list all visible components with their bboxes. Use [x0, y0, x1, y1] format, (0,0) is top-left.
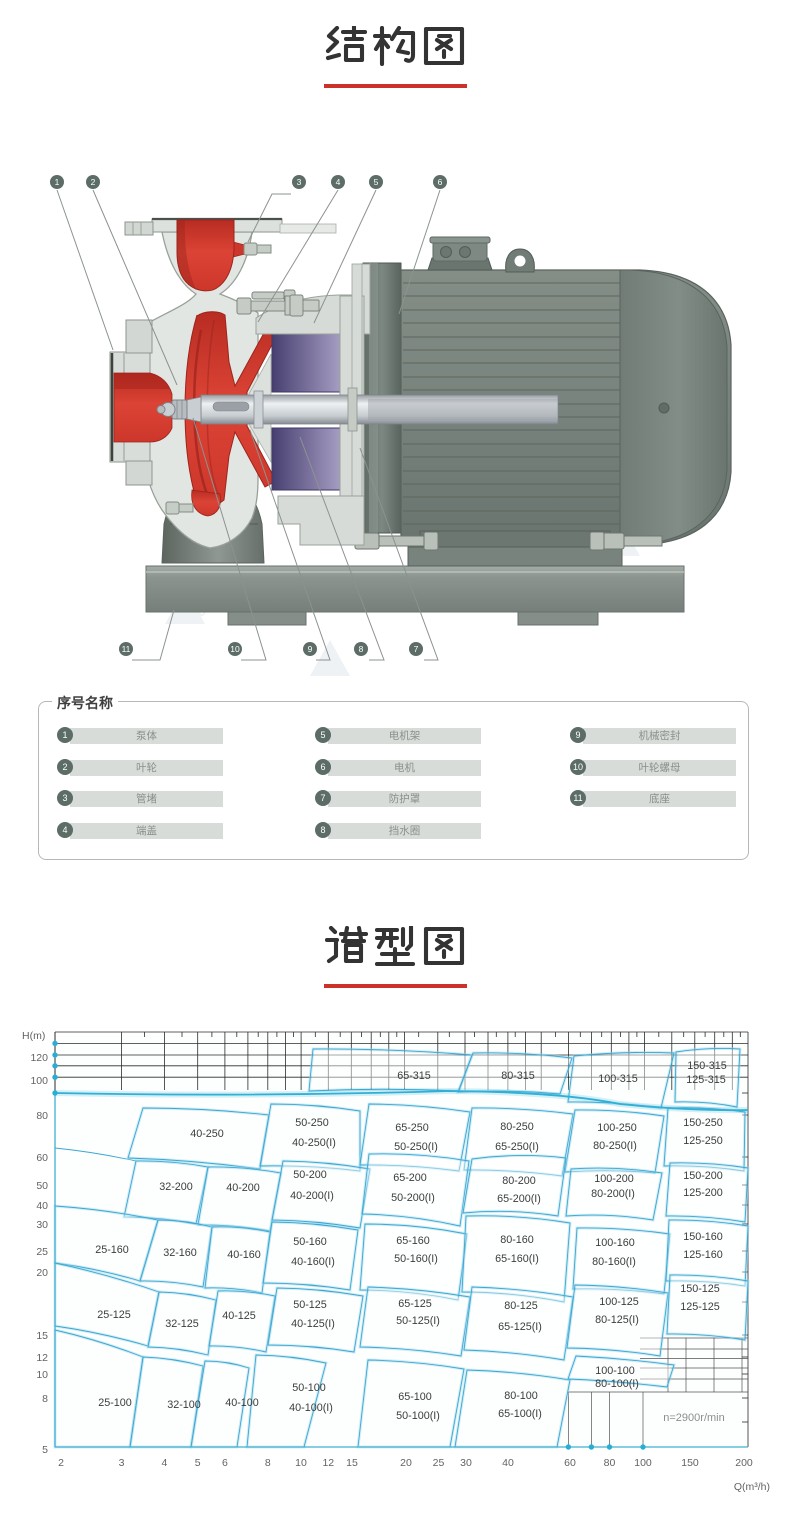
- svg-text:8: 8: [359, 644, 364, 654]
- svg-text:40: 40: [502, 1457, 514, 1469]
- svg-text:5: 5: [195, 1457, 201, 1469]
- svg-text:125-250: 125-250: [683, 1135, 723, 1147]
- svg-text:80-315: 80-315: [501, 1070, 535, 1082]
- svg-text:40-160(I): 40-160(I): [291, 1256, 335, 1268]
- svg-text:100-200: 100-200: [594, 1173, 634, 1185]
- svg-text:150-125: 150-125: [680, 1283, 720, 1295]
- svg-text:50-125(I): 50-125(I): [396, 1315, 440, 1327]
- svg-text:40-100(I): 40-100(I): [289, 1402, 333, 1414]
- svg-text:50-250(I): 50-250(I): [394, 1141, 438, 1153]
- svg-text:80-250: 80-250: [500, 1121, 534, 1133]
- svg-text:5: 5: [42, 1444, 48, 1456]
- svg-text:50-100: 50-100: [292, 1382, 326, 1394]
- svg-text:4: 4: [336, 177, 341, 187]
- svg-text:2: 2: [58, 1457, 64, 1469]
- svg-text:80-125: 80-125: [504, 1300, 538, 1312]
- svg-text:65-125(I): 65-125(I): [498, 1321, 542, 1333]
- svg-text:50-250: 50-250: [295, 1117, 329, 1129]
- svg-text:50-100(I): 50-100(I): [396, 1410, 440, 1422]
- svg-text:10: 10: [230, 644, 240, 654]
- svg-text:65-100: 65-100: [398, 1391, 432, 1403]
- svg-text:125-315: 125-315: [686, 1074, 726, 1086]
- svg-text:1: 1: [55, 177, 60, 187]
- svg-text:100-250: 100-250: [597, 1122, 637, 1134]
- svg-text:40-125(I): 40-125(I): [291, 1318, 335, 1330]
- svg-text:100: 100: [30, 1075, 48, 1087]
- svg-text:65-160: 65-160: [396, 1235, 430, 1247]
- svg-text:125-200: 125-200: [683, 1187, 723, 1199]
- svg-text:3: 3: [119, 1457, 125, 1469]
- svg-text:80-160(I): 80-160(I): [592, 1256, 636, 1268]
- svg-text:25-125: 25-125: [97, 1309, 131, 1321]
- svg-text:100-125: 100-125: [599, 1296, 639, 1308]
- svg-text:8: 8: [265, 1457, 271, 1469]
- svg-text:65-250(I): 65-250(I): [495, 1141, 539, 1153]
- svg-text:3: 3: [297, 177, 302, 187]
- svg-text:12: 12: [322, 1457, 334, 1469]
- svg-text:40-250(I): 40-250(I): [292, 1137, 336, 1149]
- svg-text:9: 9: [308, 644, 313, 654]
- svg-text:30: 30: [460, 1457, 472, 1469]
- svg-text:60: 60: [564, 1457, 576, 1469]
- svg-text:25-100: 25-100: [98, 1397, 132, 1409]
- svg-text:80-200: 80-200: [502, 1175, 536, 1187]
- svg-text:150-200: 150-200: [683, 1170, 723, 1182]
- svg-text:11: 11: [122, 644, 131, 654]
- svg-text:80-100: 80-100: [504, 1390, 538, 1402]
- svg-text:80-160: 80-160: [500, 1234, 534, 1246]
- svg-text:32-160: 32-160: [163, 1247, 197, 1259]
- svg-text:60: 60: [36, 1152, 48, 1164]
- svg-text:125-125: 125-125: [680, 1301, 720, 1313]
- svg-text:40-250: 40-250: [190, 1128, 224, 1140]
- svg-text:n=2900r/min: n=2900r/min: [663, 1412, 724, 1424]
- svg-text:120: 120: [30, 1052, 48, 1064]
- svg-text:50-200(I): 50-200(I): [391, 1192, 435, 1204]
- svg-text:65-200: 65-200: [393, 1172, 427, 1184]
- svg-text:65-125: 65-125: [398, 1298, 432, 1310]
- svg-text:15: 15: [346, 1457, 358, 1469]
- svg-text:80-125(I): 80-125(I): [595, 1314, 639, 1326]
- svg-text:65-200(I): 65-200(I): [497, 1193, 541, 1205]
- svg-text:8: 8: [42, 1393, 48, 1405]
- svg-text:4: 4: [161, 1457, 167, 1469]
- svg-text:50-125: 50-125: [293, 1299, 327, 1311]
- svg-text:H(m): H(m): [22, 1030, 45, 1042]
- svg-text:5: 5: [374, 177, 379, 187]
- svg-text:80: 80: [36, 1110, 48, 1122]
- svg-text:40-125: 40-125: [222, 1310, 256, 1322]
- svg-text:10: 10: [295, 1457, 307, 1469]
- svg-text:50: 50: [36, 1180, 48, 1192]
- svg-text:32-125: 32-125: [165, 1318, 199, 1330]
- svg-text:65-315: 65-315: [397, 1070, 431, 1082]
- svg-text:200: 200: [735, 1457, 753, 1469]
- svg-text:25: 25: [36, 1246, 48, 1258]
- svg-text:125-160: 125-160: [683, 1249, 723, 1261]
- svg-text:25: 25: [433, 1457, 445, 1469]
- svg-text:65-250: 65-250: [395, 1122, 429, 1134]
- svg-text:50-160: 50-160: [293, 1236, 327, 1248]
- svg-text:80-250(I): 80-250(I): [593, 1140, 637, 1152]
- svg-text:2: 2: [91, 177, 96, 187]
- svg-text:12: 12: [36, 1352, 48, 1364]
- svg-text:40-160: 40-160: [227, 1249, 261, 1261]
- svg-text:25-160: 25-160: [95, 1244, 129, 1256]
- svg-text:65-160(I): 65-160(I): [495, 1253, 539, 1265]
- svg-text:80-100(I): 80-100(I): [595, 1378, 639, 1390]
- svg-text:150-250: 150-250: [683, 1117, 723, 1129]
- svg-text:100-315: 100-315: [598, 1073, 638, 1085]
- svg-text:32-200: 32-200: [159, 1181, 193, 1193]
- svg-text:15: 15: [36, 1330, 48, 1342]
- svg-text:6: 6: [222, 1457, 228, 1469]
- svg-text:40-200: 40-200: [226, 1182, 260, 1194]
- svg-text:80: 80: [604, 1457, 616, 1469]
- svg-text:150: 150: [681, 1457, 699, 1469]
- svg-text:150-315: 150-315: [687, 1060, 727, 1072]
- svg-text:Q(m³/h): Q(m³/h): [734, 1481, 770, 1493]
- svg-text:40-100: 40-100: [225, 1397, 259, 1409]
- svg-text:7: 7: [414, 644, 419, 654]
- svg-text:150-160: 150-160: [683, 1231, 723, 1243]
- svg-text:30: 30: [36, 1219, 48, 1231]
- svg-text:100: 100: [634, 1457, 652, 1469]
- svg-text:80-200(I): 80-200(I): [591, 1188, 635, 1200]
- svg-text:40-200(I): 40-200(I): [290, 1190, 334, 1202]
- svg-text:100-100: 100-100: [595, 1365, 635, 1377]
- svg-text:40: 40: [36, 1200, 48, 1212]
- svg-text:6: 6: [438, 177, 443, 187]
- svg-text:20: 20: [36, 1267, 48, 1279]
- svg-text:10: 10: [36, 1369, 48, 1381]
- svg-text:65-100(I): 65-100(I): [498, 1408, 542, 1420]
- svg-text:50-200: 50-200: [293, 1169, 327, 1181]
- svg-text:100-160: 100-160: [595, 1237, 635, 1249]
- svg-text:20: 20: [400, 1457, 412, 1469]
- svg-text:50-160(I): 50-160(I): [394, 1253, 438, 1265]
- svg-text:32-100: 32-100: [167, 1399, 201, 1411]
